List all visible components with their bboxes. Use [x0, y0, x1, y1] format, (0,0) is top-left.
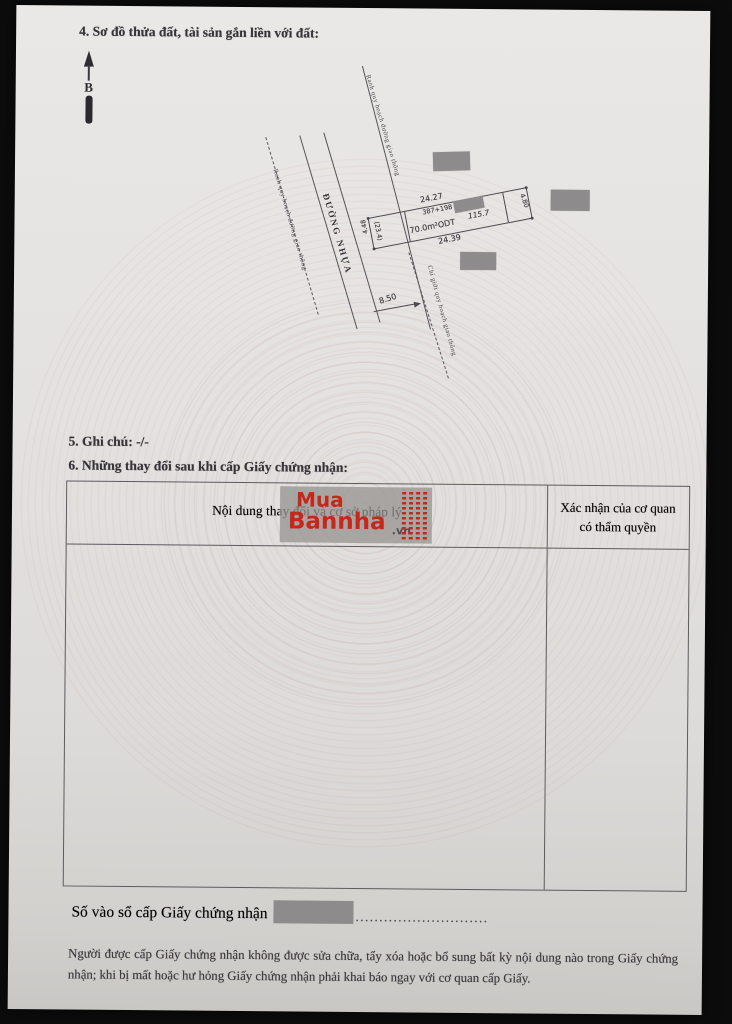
redaction-box-1 — [433, 151, 470, 171]
red-line-label: Chỉ giới quy hoạch giao thông — [426, 265, 461, 368]
parcel-plot-ref: 387+198 — [422, 203, 453, 217]
north-arrow-tip-icon — [84, 51, 94, 67]
redaction-box-3 — [460, 252, 496, 270]
certificate-page: 4. Sơ đồ thửa đất, tài sản gắn liền với … — [8, 5, 711, 1015]
section4-heading: 4. Sơ đồ thửa đất, tài sản gắn liền với … — [79, 24, 319, 42]
land-parcel-outline: (23.4) 387+198 115.7 70.0m²ODT 24.27 24.… — [368, 187, 533, 249]
serial-row: Số vào sổ cấp Giấy chứng nhận ..........… — [71, 899, 488, 926]
corner-marker — [372, 247, 376, 251]
table-col2-header-line1: Xác nhận của cơ quan — [547, 498, 689, 518]
north-label: B — [84, 81, 93, 95]
north-arrow: B — [73, 50, 104, 142]
serial-label: Số vào sổ cấp Giấy chứng nhận — [71, 904, 267, 924]
table-header-divider — [67, 543, 689, 549]
muabannha-watermark: Mua Bannha .vn — [280, 486, 432, 543]
parcel-subsection-value: (23.4) — [372, 221, 384, 242]
parcel-edge-bottom: 24.39 — [437, 233, 461, 246]
watermark-building-icon — [402, 489, 430, 539]
corner-marker — [524, 186, 528, 190]
corner-marker — [530, 216, 534, 220]
road-edge-line-1 — [299, 135, 357, 329]
serial-dotted-line: ............................ — [355, 909, 488, 925]
parcel-edge-left: 4.48 — [359, 219, 370, 235]
table-column-divider — [544, 486, 549, 890]
section6-heading: 6. Những thay đổi sau khi cấp Giấy chứng… — [68, 457, 348, 475]
footer-notice: Người được cấp Giấy chứng nhận không đượ… — [68, 943, 678, 989]
parcel-edge-top: 24.27 — [419, 191, 443, 204]
redaction-box-serial — [273, 900, 353, 924]
parcel-edge-right: 4.80 — [518, 192, 531, 208]
section5-heading: 5. Ghi chú: -/- — [69, 433, 149, 450]
table-col2-header-line2: có thẩm quyền — [547, 517, 689, 537]
north-arrow-base — [85, 96, 92, 124]
north-arrow-shaft — [88, 67, 90, 81]
road-width-value: 8.50 — [378, 292, 398, 306]
planning-boundary-label-top: Ranh quy hoạch đường giao thông — [364, 74, 402, 181]
parcel-area-main: 70.0m²ODT — [409, 218, 456, 236]
watermark-word2: Bannha — [288, 508, 386, 535]
table-col2-header: Xác nhận của cơ quan có thẩm quyền — [547, 498, 689, 537]
planning-boundary-label-left: Ranh quy hoạch đường giao thông — [272, 168, 310, 275]
redaction-box-2 — [551, 190, 590, 211]
parcel-divider-right — [502, 193, 509, 223]
